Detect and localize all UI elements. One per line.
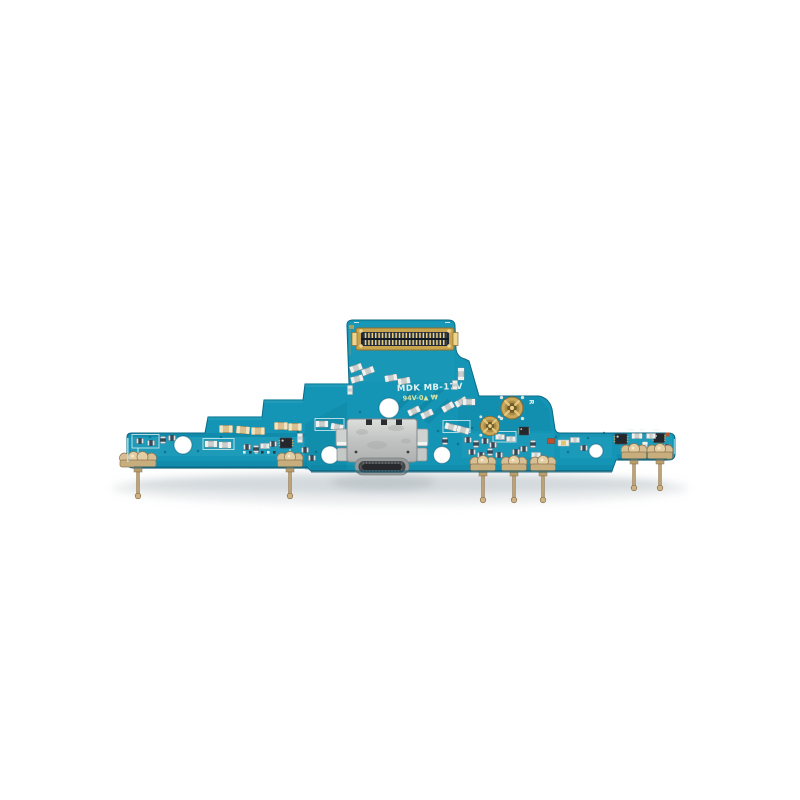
smd-capacitor <box>348 386 353 395</box>
smd-capacitor <box>302 448 309 453</box>
smd-capacitor <box>261 444 270 449</box>
smd-capacitor <box>270 442 277 447</box>
smd-capacitor <box>507 437 516 442</box>
via <box>457 443 460 446</box>
smd-inductor <box>289 424 302 431</box>
via <box>359 411 362 414</box>
pour-band <box>208 416 262 420</box>
gold-pad <box>349 325 354 329</box>
pour-band <box>264 399 303 403</box>
usb-top-slots <box>366 420 402 426</box>
smd-capacitor <box>148 441 155 446</box>
b2b-corner-pad <box>359 344 363 348</box>
b2b-pin-row-top <box>364 333 447 338</box>
screw-hole <box>589 444 603 458</box>
via <box>164 451 167 454</box>
component-dot <box>249 451 252 454</box>
via <box>315 451 318 454</box>
smd-capacitor <box>531 441 536 448</box>
screw-hole <box>379 398 399 418</box>
smd-capacitor <box>169 436 176 441</box>
via <box>437 430 440 433</box>
smd-capacitor <box>488 449 493 456</box>
via <box>603 432 606 435</box>
smd-inductor <box>252 428 265 435</box>
pour-band <box>131 437 304 456</box>
smd-capacitor <box>453 381 458 390</box>
smd-capacitor <box>490 443 497 448</box>
usb-rivet <box>355 451 358 454</box>
component-dot <box>273 451 276 454</box>
smd-capacitor <box>309 456 316 461</box>
smd-capacitor <box>219 442 231 448</box>
via <box>149 436 152 439</box>
usb-solder <box>417 442 427 446</box>
shell-smudge <box>356 429 368 435</box>
smd-capacitor <box>521 447 528 452</box>
smd-inductor <box>236 426 250 434</box>
silkscreen-dot <box>267 451 270 454</box>
shell-smudge <box>367 441 387 449</box>
silkscreen-r-marking: R <box>528 400 536 405</box>
smd-resistor-red <box>666 433 670 437</box>
smd-capacitor <box>458 368 464 380</box>
via <box>220 436 223 439</box>
screw-hole <box>321 446 339 464</box>
usb-slot <box>366 420 372 426</box>
silkscreen-rating-text: 94V-0▲ ₩ <box>403 393 439 402</box>
shell-smudge <box>388 425 404 431</box>
via <box>197 450 200 453</box>
component-dot <box>261 451 264 454</box>
usb-slot <box>396 420 402 426</box>
ic-chip <box>614 434 629 444</box>
shell-smudge <box>401 439 411 444</box>
pcb-photo-canvas: MDK MB-17V 94V-0▲ ₩ R <box>0 0 800 800</box>
smd-capacitor <box>474 441 479 448</box>
via <box>567 451 570 454</box>
smd-capacitor <box>137 439 144 444</box>
smd-capacitor <box>443 438 448 445</box>
smd-capacitor <box>571 438 580 443</box>
screw-hole <box>434 447 451 464</box>
board-to-board-connector <box>352 328 458 350</box>
usb-slot <box>381 420 387 426</box>
usb-leg <box>416 448 427 461</box>
pour-band <box>305 383 349 387</box>
smd-resistor-red <box>548 439 555 444</box>
silkscreen-dot <box>243 451 246 454</box>
b2b-corner-pad <box>447 329 451 333</box>
smd-capacitor <box>469 450 476 455</box>
via <box>297 431 300 434</box>
product-photo: MDK MB-17V 94V-0▲ ₩ R <box>0 0 800 800</box>
smd-capacitor <box>647 434 656 439</box>
smd-capacitor <box>581 446 588 451</box>
smd-capacitor <box>298 434 303 443</box>
smd-capacitor <box>465 438 472 443</box>
smd-inductor <box>220 426 233 433</box>
pour-band <box>128 433 305 437</box>
ic-chip <box>279 438 294 448</box>
smd-capacitor <box>463 399 475 405</box>
usb-solder <box>337 442 347 446</box>
smd-capacitor <box>632 433 642 438</box>
ic-chip <box>518 427 530 435</box>
b2b-corner-pad <box>447 344 451 348</box>
usb-rivet <box>407 451 410 454</box>
b2b-corner-pad <box>359 329 363 333</box>
smd-capacitor <box>496 453 503 458</box>
b2b-side-tab <box>352 333 357 346</box>
smd-capacitor <box>161 437 166 444</box>
via <box>587 437 590 440</box>
smd-capacitor <box>316 421 328 427</box>
smd-capacitor <box>482 439 489 444</box>
screw-hole <box>174 436 192 454</box>
smd-capacitor <box>244 445 251 450</box>
via <box>555 436 558 439</box>
b2b-pin-row-bottom <box>364 340 447 345</box>
smd-capacitor <box>205 441 217 447</box>
usb-leg <box>337 448 348 461</box>
smd-led-yellow <box>558 440 569 446</box>
smd-capacitor <box>254 446 259 453</box>
shadow-usb <box>331 473 435 491</box>
usb-opening-core <box>362 464 402 470</box>
via <box>471 427 474 430</box>
smd-capacitor <box>513 450 520 455</box>
board-shadow <box>112 471 688 505</box>
b2b-side-tab <box>453 333 458 346</box>
smd-inductor <box>275 423 288 430</box>
